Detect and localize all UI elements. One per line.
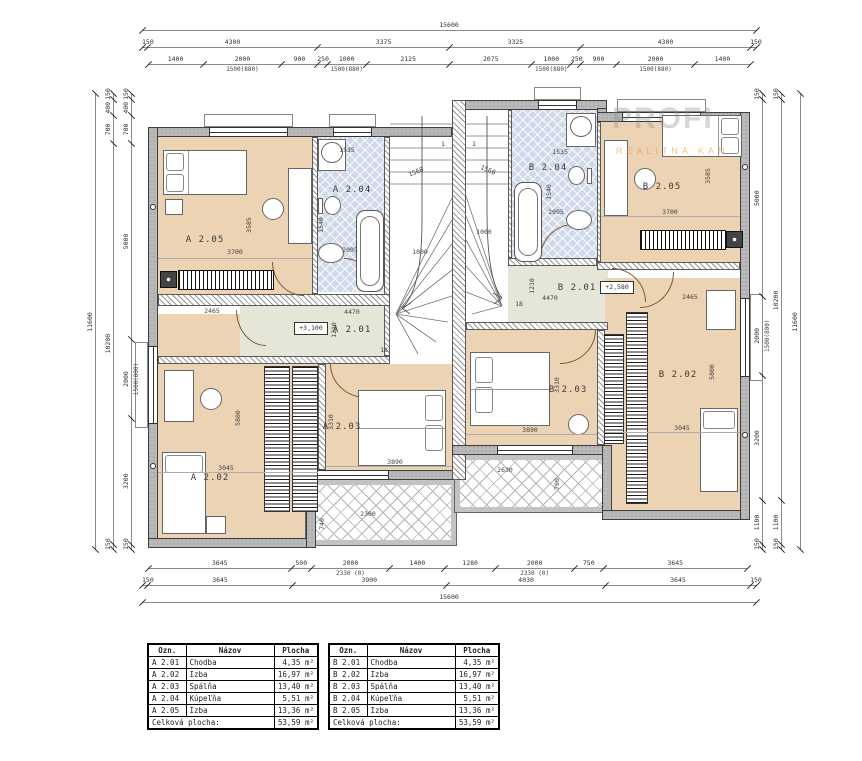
dim-stair-b-w: 1000 xyxy=(476,228,492,236)
area-table: Ozn.NázovPlochaB 2.01Chodba4,35 m²B 2.02… xyxy=(328,643,500,730)
dim-a201-len: 4470 xyxy=(344,308,360,316)
dim-b201-len: 4470 xyxy=(542,294,558,302)
dim-value: 150 xyxy=(104,94,113,100)
dim-value: 2000 xyxy=(122,340,131,419)
dim-value: 700 xyxy=(104,116,113,144)
bed-a205 xyxy=(163,150,247,195)
window-sill xyxy=(329,114,376,127)
window-a205 xyxy=(209,127,288,137)
table-cell: 13,36 m² xyxy=(455,705,499,717)
radiator-a205 xyxy=(178,270,274,290)
desk-a205 xyxy=(288,168,312,244)
dim-value: 1100 xyxy=(772,501,781,544)
sink-b204 xyxy=(570,116,592,137)
balcony-door-a xyxy=(313,470,389,480)
floor-plan-sheet: +3,100 +2,580 A 2.05 A 2.04 A 2.01 A 2.0… xyxy=(0,0,862,761)
dim-value: 400 xyxy=(122,100,131,116)
table-cell: 13,40 m² xyxy=(455,681,499,693)
wall-bottom-b xyxy=(602,510,750,520)
dim-b205-w: 3700 xyxy=(662,208,678,216)
dim-b201-door: 2465 xyxy=(682,293,698,301)
dim-value: 150 xyxy=(122,94,131,100)
wardrobe-a xyxy=(292,366,318,512)
radiator-valve-a205 xyxy=(160,271,177,288)
dim-value: 11600 xyxy=(86,94,95,550)
dim-a201-door: 2465 xyxy=(204,307,220,315)
toilet-tank-b204 xyxy=(587,168,592,184)
table-row: B 2.01Chodba4,35 m² xyxy=(329,657,499,669)
table-row: A 2.05Izba13,36 m² xyxy=(148,705,318,717)
table-cell: A 2.01 xyxy=(148,657,186,669)
dim-value: 1100 xyxy=(753,501,762,544)
dim-a202-w: 3045 xyxy=(218,464,234,472)
dim-a204-d: 1540 xyxy=(317,217,325,233)
toilet-tank-a204 xyxy=(318,198,323,214)
window-a202 xyxy=(148,346,158,424)
dim-a203-h: 3310 xyxy=(327,414,335,430)
table-header-cell: Ozn. xyxy=(329,644,367,657)
table-total-value: 53,59 m² xyxy=(274,717,318,730)
dim-value: 2000 xyxy=(495,559,574,568)
table-row: B 2.02Izba16,97 m² xyxy=(329,669,499,681)
wardrobe-a xyxy=(264,366,290,512)
wall-vent xyxy=(150,463,156,469)
dim-value: 3900 xyxy=(292,576,446,585)
dim-a204-h: 2095 xyxy=(342,246,358,254)
table-row: B 2.04Kúpeľňa5,51 m² xyxy=(329,693,499,705)
bathtub-a204 xyxy=(356,210,384,292)
wall-top-middle xyxy=(452,100,607,110)
area-table-unit-b: Ozn.NázovPlochaB 2.01Chodba4,35 m²B 2.02… xyxy=(328,643,500,730)
stair-a-steps: 18 xyxy=(380,346,388,354)
toilet-a204 xyxy=(324,196,341,215)
table-cell: 4,35 m² xyxy=(455,657,499,669)
dim-guide xyxy=(466,434,597,435)
dim-b204-h: 2095 xyxy=(548,208,564,216)
window-sill xyxy=(534,87,581,100)
dim-value: 3645 xyxy=(148,559,291,568)
nightstand-a205 xyxy=(165,199,183,215)
table-a202 xyxy=(206,516,226,534)
dim-value: 900 xyxy=(282,55,317,64)
table-cell: Izba xyxy=(186,669,274,681)
dim-value: 2000 xyxy=(203,55,282,64)
room-label-a201: A 2.01 xyxy=(333,325,372,335)
dim-value: 1000 xyxy=(327,55,366,64)
table-cell: B 2.05 xyxy=(329,705,367,717)
balcony-a xyxy=(306,480,456,545)
dim-value: 2000 xyxy=(616,55,695,64)
level-marker-a: +3,100 xyxy=(294,322,328,335)
desk-a202 xyxy=(164,370,194,422)
table-cell: B 2.01 xyxy=(329,657,367,669)
table-row: A 2.03Spálňa13,40 m² xyxy=(148,681,318,693)
dim-b201-wid: 1210 xyxy=(528,278,536,294)
bathtub-b204 xyxy=(514,182,542,262)
table-cell: A 2.03 xyxy=(148,681,186,693)
wall-vent xyxy=(742,164,748,170)
table-cell: A 2.02 xyxy=(148,669,186,681)
dim-value: 3645 xyxy=(604,559,747,568)
dim-value: 400 xyxy=(104,100,113,116)
table-row: A 2.02Izba16,97 m² xyxy=(148,669,318,681)
dim-value: 10200 xyxy=(104,143,113,544)
dim-value: 1000 xyxy=(532,55,571,64)
room-label-b202: B 2.02 xyxy=(659,370,698,380)
table-cell: 13,40 m² xyxy=(274,681,318,693)
dim-value: 150 xyxy=(750,576,756,585)
window-sill xyxy=(204,114,293,127)
wall-bottom-a xyxy=(148,538,316,548)
window-b204 xyxy=(538,100,577,110)
stair-b-steps: 18 xyxy=(515,300,523,308)
table-cell: B 2.04 xyxy=(329,693,367,705)
dim-b204-w: 1535 xyxy=(552,148,568,156)
wall-vent xyxy=(742,432,748,438)
table-total-label: Celková plocha: xyxy=(329,717,455,730)
table-cell: Kúpeľňa xyxy=(367,693,455,705)
dim-value: 3645 xyxy=(148,576,292,585)
dim-sub-value: 1500(880) xyxy=(327,66,366,73)
double-bed-b203 xyxy=(470,352,550,426)
table-cell: Spálňa xyxy=(186,681,274,693)
dim-value: 1280 xyxy=(445,559,495,568)
table-header-cell: Plocha xyxy=(274,644,318,657)
dim-b203-w: 3890 xyxy=(522,426,538,434)
dim-value: 150 xyxy=(753,94,762,100)
dim-value: 3200 xyxy=(122,418,131,544)
watermark-subtitle: REALITNA KAN xyxy=(616,146,729,156)
table-cell: 5,51 m² xyxy=(455,693,499,705)
room-label-a202: A 2.02 xyxy=(191,473,230,483)
bed-a202 xyxy=(162,452,206,534)
dim-guide xyxy=(158,258,312,259)
basin-a204 xyxy=(318,243,344,263)
dim-value: 150 xyxy=(104,544,113,550)
dim-value: 5000 xyxy=(753,100,762,297)
dim-sub-value: 1500(800) xyxy=(133,340,140,419)
dim-value: 900 xyxy=(581,55,616,64)
partition-corridor-a-bottom xyxy=(158,356,390,364)
dim-value: 15600 xyxy=(142,21,756,30)
window-b202 xyxy=(740,298,750,377)
dim-sub-value: 1500(880) xyxy=(203,66,282,73)
table-row: A 2.04Kúpeľňa5,51 m² xyxy=(148,693,318,705)
desk-b202 xyxy=(706,290,736,330)
window-a204 xyxy=(333,127,372,137)
dim-b204-d: 1540 xyxy=(545,184,553,200)
area-table-unit-a: Ozn.NázovPlochaA 2.01Chodba4,35 m²A 2.02… xyxy=(147,643,319,730)
table-row: A 2.01Chodba4,35 m² xyxy=(148,657,318,669)
dim-value: 4300 xyxy=(581,38,750,47)
table-header-cell: Názov xyxy=(186,644,274,657)
table-cell: Chodba xyxy=(186,657,274,669)
dim-value: 250 xyxy=(571,55,581,64)
table-cell: 16,97 m² xyxy=(274,669,318,681)
dim-balc-b-h: 700 xyxy=(553,478,561,490)
dim-a202-h: 5800 xyxy=(234,410,242,426)
dim-a201-wid: 1210 xyxy=(330,322,338,338)
table-cell: Izba xyxy=(367,705,455,717)
dim-b202-h: 5800 xyxy=(708,364,716,380)
dim-guide xyxy=(158,472,318,473)
dim-balc-a-h: 740 xyxy=(318,518,326,530)
dim-a204-w: 1535 xyxy=(339,146,355,154)
table-cell: Spálňa xyxy=(367,681,455,693)
dim-guide xyxy=(326,466,452,467)
dim-b205-h: 3585 xyxy=(704,168,712,184)
dim-value: 250 xyxy=(317,55,327,64)
dim-value: 150 xyxy=(122,544,131,550)
partition-corridor-a-top xyxy=(158,294,390,306)
table-cell: 5,51 m² xyxy=(274,693,318,705)
partition-corridor-b-bottom xyxy=(466,322,608,330)
dim-b203-h: 3310 xyxy=(553,377,561,393)
dim-value: 10200 xyxy=(772,100,781,501)
table-row: B 2.03Spálňa13,40 m² xyxy=(329,681,499,693)
table-total-row: Celková plocha:53,59 m² xyxy=(329,717,499,730)
dim-value: 5000 xyxy=(122,143,131,340)
wall-jog-b xyxy=(602,445,612,520)
dim-value: 750 xyxy=(574,559,604,568)
dim-sub-value: 1500(800) xyxy=(764,296,771,375)
watermark-logo: PROFI xyxy=(612,102,714,136)
table-header-cell: Ozn. xyxy=(148,644,186,657)
table-cell: B 2.02 xyxy=(329,669,367,681)
stair-a-start: 1 xyxy=(441,140,445,148)
dim-guide xyxy=(605,432,740,433)
bed-b202 xyxy=(700,408,738,492)
room-label-b204: B 2.04 xyxy=(529,163,568,173)
table-cell: 13,36 m² xyxy=(274,705,318,717)
dim-value: 700 xyxy=(122,116,131,144)
stair-b-start: 1 xyxy=(472,140,476,148)
dim-b202-w: 3045 xyxy=(674,424,690,432)
basin-b204 xyxy=(566,210,592,230)
table-cell: 16,97 m² xyxy=(455,669,499,681)
wall-vent xyxy=(150,204,156,210)
dim-value: 3375 xyxy=(317,38,450,47)
dim-guide xyxy=(601,216,740,217)
table-cell: Izba xyxy=(186,705,274,717)
chair-b203 xyxy=(568,414,589,435)
table-row: B 2.05Izba13,36 m² xyxy=(329,705,499,717)
wardrobe-b xyxy=(626,312,648,504)
wall-left xyxy=(148,127,158,548)
level-marker-b: +2,580 xyxy=(600,281,634,294)
dim-value: 2000 xyxy=(311,559,390,568)
table-header-cell: Plocha xyxy=(455,644,499,657)
dim-value: 2000 xyxy=(753,296,762,375)
dim-stair-a-w: 1000 xyxy=(412,248,428,256)
dim-value: 150 xyxy=(750,38,756,47)
dim-a205-w: 3700 xyxy=(227,248,243,256)
table-total-value: 53,59 m² xyxy=(455,717,499,730)
partition-a202-a203 xyxy=(318,364,326,470)
dim-balc-b-w: 2630 xyxy=(497,466,513,474)
dim-value: 11600 xyxy=(791,94,800,550)
dim-value: 1400 xyxy=(695,55,750,64)
dim-value: 4300 xyxy=(148,38,317,47)
table-cell: Izba xyxy=(367,669,455,681)
dim-value: 1400 xyxy=(390,559,445,568)
table-cell: A 2.05 xyxy=(148,705,186,717)
table-cell: A 2.04 xyxy=(148,693,186,705)
room-label-a205: A 2.05 xyxy=(186,235,225,245)
chair-a205 xyxy=(262,198,284,220)
room-label-b201: B 2.01 xyxy=(558,283,597,293)
dim-value: 3200 xyxy=(753,375,762,501)
balcony-door-b xyxy=(497,445,573,455)
dim-value: 150 xyxy=(772,544,781,550)
chair-a202 xyxy=(200,388,222,410)
double-bed-a203 xyxy=(358,390,446,466)
radiator-b205 xyxy=(640,230,726,250)
dim-value: 2075 xyxy=(450,55,532,64)
room-label-a204: A 2.04 xyxy=(333,185,372,195)
table-total-label: Celková plocha: xyxy=(148,717,274,730)
table-cell: B 2.03 xyxy=(329,681,367,693)
dim-value: 1400 xyxy=(148,55,203,64)
dim-value: 3325 xyxy=(450,38,581,47)
balcony-b xyxy=(455,455,607,512)
wall-center-party xyxy=(452,100,466,480)
table-cell: Kúpeľňa xyxy=(186,693,274,705)
wardrobe-b xyxy=(604,334,624,444)
dim-balc-a-w: 2300 xyxy=(360,510,376,518)
dim-a205-h: 3585 xyxy=(245,217,253,233)
room-label-b205: B 2.05 xyxy=(643,182,682,192)
dim-sub-value: 1500(880) xyxy=(616,66,695,73)
table-total-row: Celková plocha:53,59 m² xyxy=(148,717,318,730)
dim-value: 2125 xyxy=(366,55,450,64)
dim-value: 150 xyxy=(772,94,781,100)
partition-stairb-right xyxy=(508,110,512,258)
table-cell: Chodba xyxy=(367,657,455,669)
dim-value: 500 xyxy=(291,559,311,568)
dim-value: 4030 xyxy=(446,576,605,585)
dim-value: 15600 xyxy=(142,593,756,602)
table-cell: 4,35 m² xyxy=(274,657,318,669)
partition-b204-right xyxy=(597,122,601,262)
area-table: Ozn.NázovPlochaA 2.01Chodba4,35 m²A 2.02… xyxy=(147,643,319,730)
dim-sub-value: 1500(880) xyxy=(532,66,571,73)
dim-value: 150 xyxy=(753,544,762,550)
radiator-valve-b205 xyxy=(726,231,743,248)
toilet-b204 xyxy=(568,166,585,185)
dim-a203-w: 3890 xyxy=(387,458,403,466)
table-header-cell: Názov xyxy=(367,644,455,657)
dim-value: 3645 xyxy=(606,576,750,585)
